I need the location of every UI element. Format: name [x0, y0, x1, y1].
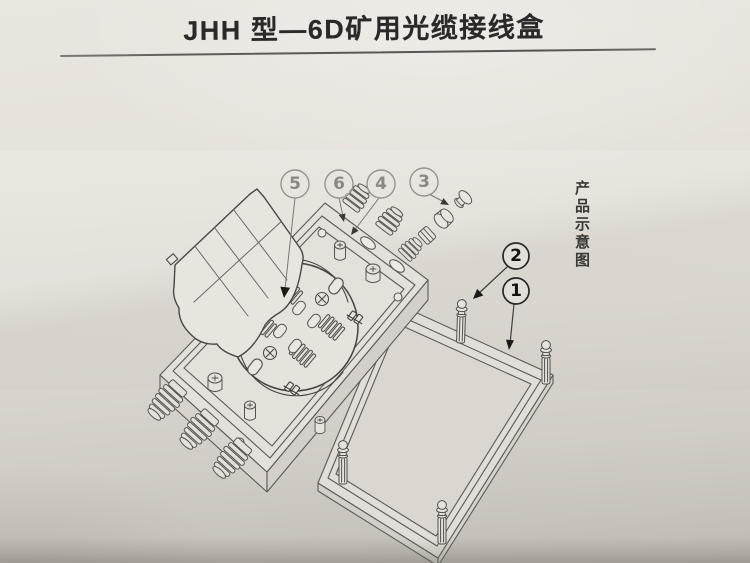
exploded-parts-diagram: 5 6 4 3 2 1: [0, 0, 750, 563]
screw: [315, 416, 325, 433]
svg-text:4: 4: [375, 174, 387, 194]
gland-cap: [451, 188, 474, 211]
callout-6: 6: [325, 170, 353, 198]
arrowhead: [506, 340, 514, 350]
tray-screw: [316, 293, 329, 306]
frame-bolt: [541, 341, 552, 384]
callout-5: 5: [281, 170, 309, 198]
callout-3: 3: [410, 168, 438, 196]
callout-2: 2: [503, 243, 529, 269]
arrowhead: [440, 198, 449, 205]
photographed-page: JHH 型—6D矿用光缆接线盒 产品示意图: [0, 0, 750, 563]
frame-bolt: [437, 501, 448, 544]
svg-text:6: 6: [333, 174, 345, 194]
screw: [245, 401, 256, 420]
frame-bolt: [338, 441, 349, 484]
svg-text:3: 3: [418, 172, 430, 192]
screw: [335, 241, 346, 260]
svg-text:2: 2: [510, 246, 522, 266]
callout-1: 1: [503, 278, 529, 304]
svg-text:5: 5: [289, 174, 301, 194]
hex-standoff: [366, 264, 380, 283]
svg-text:1: 1: [510, 281, 522, 301]
hex-standoff: [208, 373, 222, 392]
callout-4: 4: [367, 170, 395, 198]
gland-seal-ring: [432, 206, 456, 230]
tray-screw: [264, 347, 277, 360]
gland-nut: [374, 203, 407, 237]
